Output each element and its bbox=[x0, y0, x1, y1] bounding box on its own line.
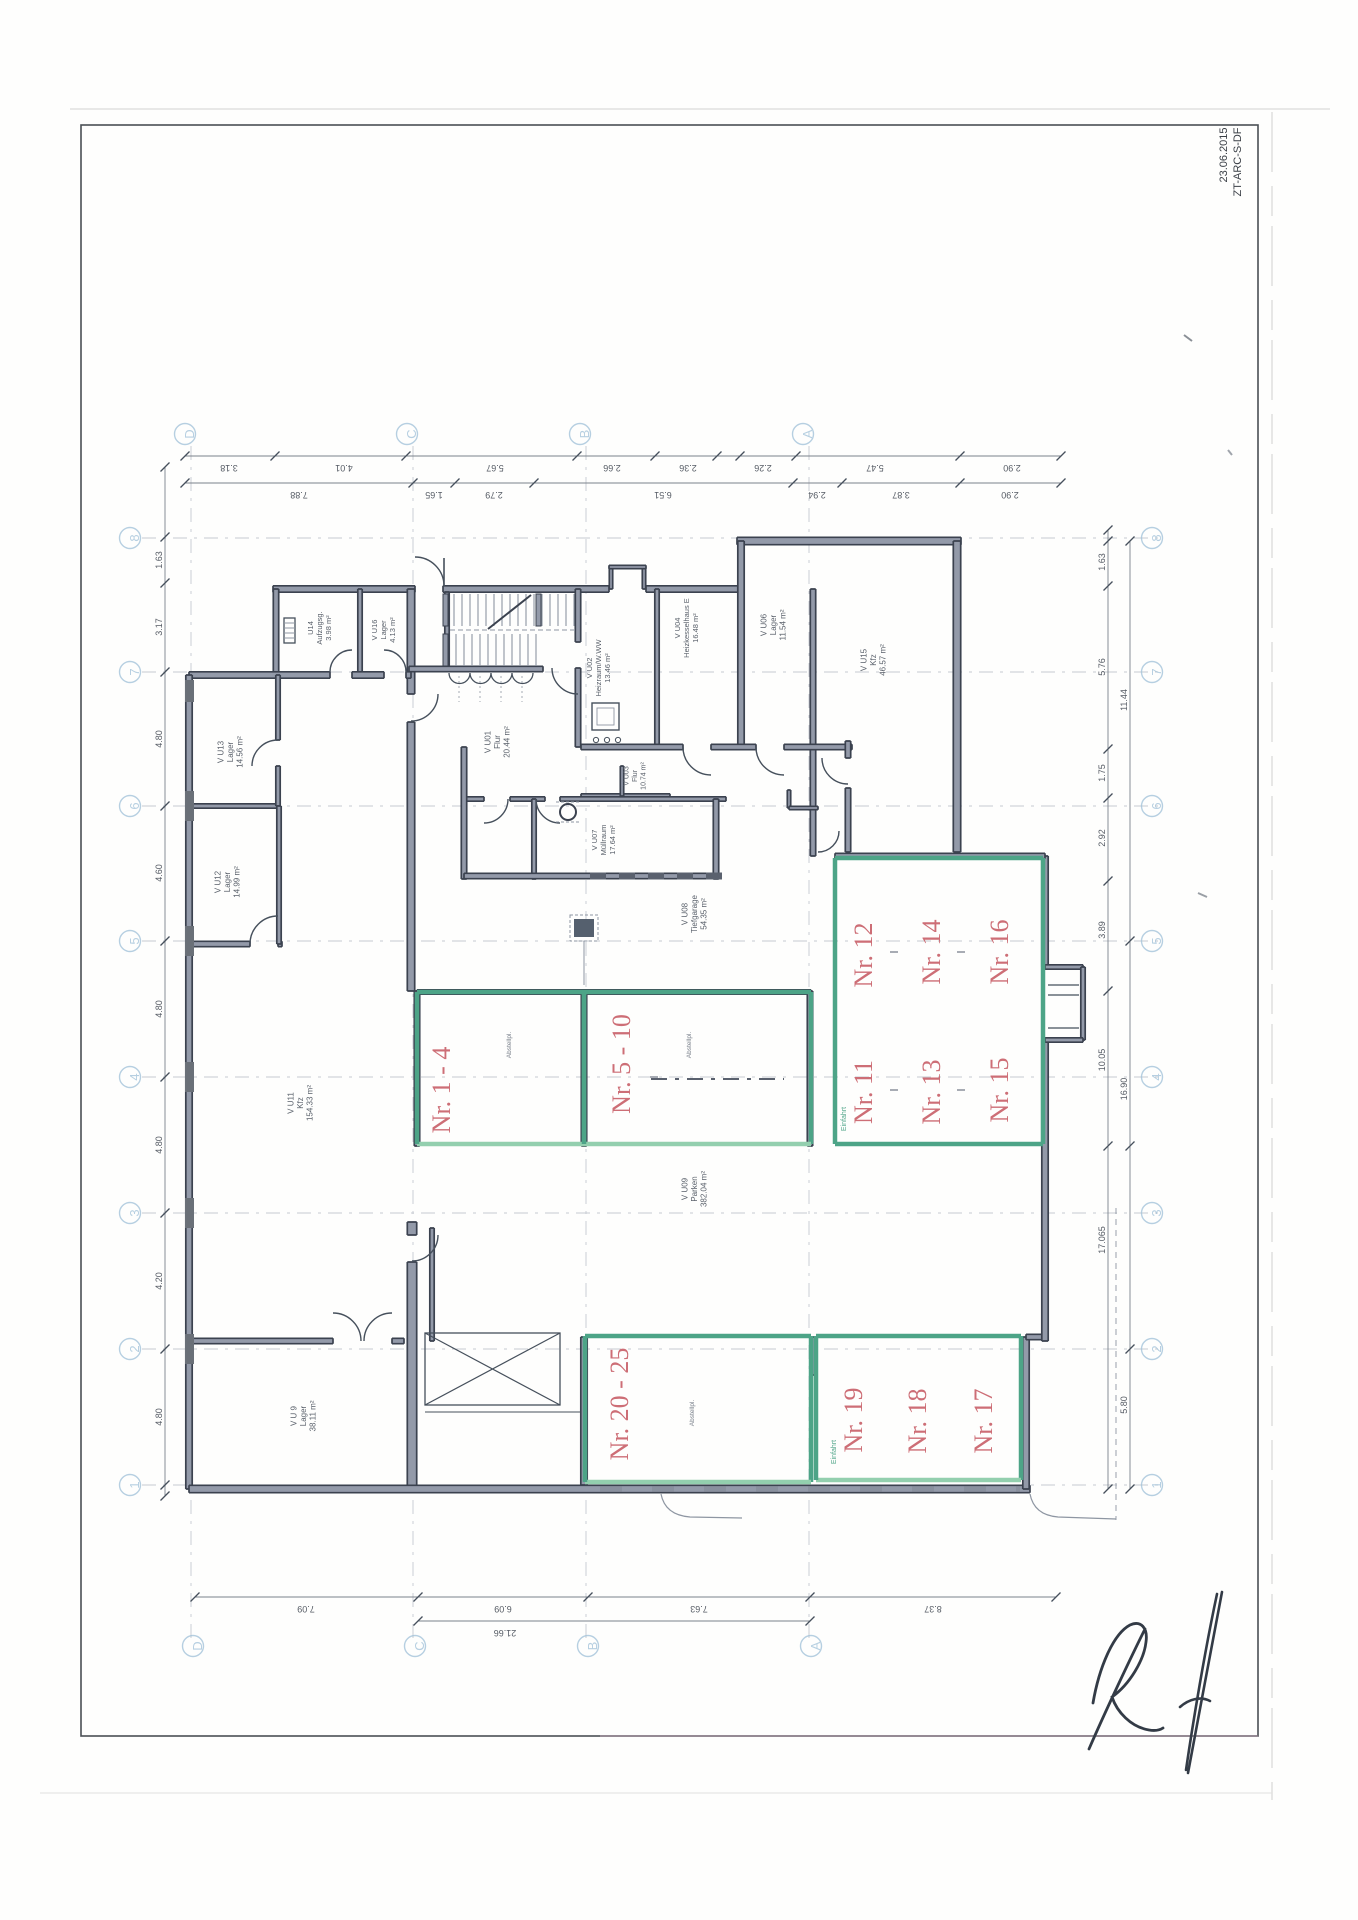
svg-text:7: 7 bbox=[127, 668, 142, 675]
svg-text:4.13 m²: 4.13 m² bbox=[388, 617, 397, 643]
svg-text:4: 4 bbox=[1149, 1073, 1164, 1080]
svg-text:6: 6 bbox=[127, 802, 142, 809]
svg-text:4.80: 4.80 bbox=[154, 1136, 164, 1154]
svg-text:ZT-ARC-S-DF: ZT-ARC-S-DF bbox=[1232, 127, 1244, 196]
svg-text:B: B bbox=[577, 430, 592, 439]
svg-text:11.44: 11.44 bbox=[1119, 689, 1129, 711]
svg-text:Nr. 16: Nr. 16 bbox=[985, 920, 1014, 985]
svg-text:16.48 m²: 16.48 m² bbox=[691, 613, 700, 643]
svg-text:14.56 m²: 14.56 m² bbox=[236, 736, 245, 768]
svg-text:2.79: 2.79 bbox=[485, 490, 503, 500]
svg-text:4.20: 4.20 bbox=[154, 1272, 164, 1290]
svg-text:A: A bbox=[808, 1641, 823, 1650]
svg-text:Müllraum: Müllraum bbox=[599, 825, 608, 856]
svg-text:2.66: 2.66 bbox=[603, 463, 621, 473]
svg-text:2.90: 2.90 bbox=[1001, 490, 1019, 500]
svg-text:C: C bbox=[412, 1641, 427, 1650]
svg-text:V U07: V U07 bbox=[590, 830, 599, 851]
svg-text:7.88: 7.88 bbox=[290, 490, 308, 500]
svg-text:4.01: 4.01 bbox=[335, 463, 353, 473]
svg-text:Nr. 11: Nr. 11 bbox=[849, 1060, 878, 1124]
svg-text:5.80: 5.80 bbox=[1119, 1396, 1129, 1414]
svg-text:V U15: V U15 bbox=[860, 648, 869, 671]
svg-text:Parken: Parken bbox=[690, 1176, 699, 1201]
svg-text:16.90: 16.90 bbox=[1119, 1078, 1129, 1101]
svg-text:7.09: 7.09 bbox=[297, 1604, 315, 1614]
svg-text:Nr. 17: Nr. 17 bbox=[969, 1389, 998, 1454]
svg-text:D: D bbox=[182, 429, 197, 438]
svg-text:21.66: 21.66 bbox=[494, 1628, 517, 1638]
svg-text:5: 5 bbox=[127, 937, 142, 944]
svg-text:Heizraum/W.WW: Heizraum/W.WW bbox=[594, 639, 603, 697]
svg-text:Heizkesselhaus E: Heizkesselhaus E bbox=[682, 598, 691, 658]
svg-text:V U01: V U01 bbox=[484, 730, 493, 753]
svg-text:Lager: Lager bbox=[223, 871, 232, 892]
svg-text:6.51: 6.51 bbox=[654, 490, 672, 500]
svg-text:V U09: V U09 bbox=[681, 1177, 690, 1200]
svg-text:23.06.2015: 23.06.2015 bbox=[1218, 127, 1230, 182]
svg-text:Lager: Lager bbox=[299, 1405, 308, 1426]
svg-text:3.89: 3.89 bbox=[1097, 921, 1107, 939]
svg-text:V U04: V U04 bbox=[673, 618, 682, 639]
svg-text:Flur: Flur bbox=[493, 735, 502, 749]
svg-text:Nr. 20 - 25: Nr. 20 - 25 bbox=[605, 1348, 634, 1461]
svg-text:4.80: 4.80 bbox=[154, 1000, 164, 1018]
svg-text:17.64 m²: 17.64 m² bbox=[608, 825, 617, 855]
svg-text:3.98 m²: 3.98 m² bbox=[324, 615, 333, 641]
svg-text:V U06: V U06 bbox=[760, 613, 769, 636]
svg-text:Nr. 14: Nr. 14 bbox=[917, 920, 946, 985]
svg-text:V U02: V U02 bbox=[585, 658, 594, 679]
svg-text:Abstellpl.: Abstellpl. bbox=[506, 1032, 513, 1059]
svg-text:Kfz: Kfz bbox=[869, 654, 878, 666]
svg-text:3.87: 3.87 bbox=[892, 490, 910, 500]
svg-text:U14: U14 bbox=[306, 621, 315, 635]
svg-text:2.92: 2.92 bbox=[1097, 829, 1107, 847]
svg-text:V U12: V U12 bbox=[214, 870, 223, 893]
svg-text:B: B bbox=[585, 1642, 600, 1651]
svg-text:V U11: V U11 bbox=[287, 1092, 296, 1114]
svg-text:6: 6 bbox=[1149, 802, 1164, 809]
svg-text:8: 8 bbox=[127, 534, 142, 541]
svg-text:2: 2 bbox=[127, 1345, 142, 1352]
svg-text:Nr. 5 - 10: Nr. 5 - 10 bbox=[607, 1014, 636, 1114]
svg-text:3.17: 3.17 bbox=[154, 618, 164, 636]
svg-text:5.47: 5.47 bbox=[866, 463, 884, 473]
svg-text:Nr. 18: Nr. 18 bbox=[903, 1389, 932, 1454]
svg-text:10.05: 10.05 bbox=[1097, 1049, 1107, 1072]
svg-text:46.57 m²: 46.57 m² bbox=[879, 644, 888, 676]
svg-text:V U13: V U13 bbox=[217, 740, 226, 763]
svg-text:5: 5 bbox=[1149, 937, 1164, 944]
svg-text:Lager: Lager bbox=[226, 741, 235, 762]
svg-text:Flur: Flur bbox=[632, 769, 639, 782]
svg-text:Nr. 1 - 4: Nr. 1 - 4 bbox=[427, 1047, 456, 1134]
svg-text:382.04 m²: 382.04 m² bbox=[700, 1171, 709, 1207]
svg-text:4.80: 4.80 bbox=[154, 1408, 164, 1426]
svg-text:Aufzugsg.: Aufzugsg. bbox=[315, 611, 324, 644]
svg-text:5.76: 5.76 bbox=[1097, 658, 1107, 676]
svg-text:4.60: 4.60 bbox=[154, 864, 164, 882]
svg-text:Tiefgarage: Tiefgarage bbox=[690, 894, 699, 933]
svg-text:17.065: 17.065 bbox=[1097, 1226, 1107, 1254]
svg-text:6.09: 6.09 bbox=[494, 1604, 512, 1614]
svg-text:14.99 m²: 14.99 m² bbox=[233, 866, 242, 898]
svg-text:D: D bbox=[190, 1641, 205, 1650]
svg-text:C: C bbox=[404, 429, 419, 438]
svg-text:2.36: 2.36 bbox=[679, 463, 697, 473]
svg-text:Abstellpl.: Abstellpl. bbox=[686, 1032, 693, 1059]
svg-text:7: 7 bbox=[1149, 668, 1164, 675]
svg-text:10.74 m²: 10.74 m² bbox=[641, 762, 648, 790]
svg-text:A: A bbox=[800, 429, 815, 438]
svg-text:Kfz: Kfz bbox=[296, 1097, 305, 1109]
svg-text:154.33 m²: 154.33 m² bbox=[306, 1085, 315, 1121]
svg-text:1.75: 1.75 bbox=[1097, 764, 1107, 782]
svg-text:13.46 m²: 13.46 m² bbox=[603, 653, 612, 683]
svg-text:3: 3 bbox=[1149, 1209, 1164, 1216]
svg-text:Nr. 19: Nr. 19 bbox=[839, 1388, 868, 1453]
svg-text:Lager: Lager bbox=[769, 614, 778, 635]
svg-text:Nr. 15: Nr. 15 bbox=[985, 1058, 1014, 1123]
svg-text:3: 3 bbox=[127, 1209, 142, 1216]
svg-text:54.35 m²: 54.35 m² bbox=[700, 898, 709, 930]
svg-text:5.67: 5.67 bbox=[486, 463, 504, 473]
svg-text:1: 1 bbox=[1149, 1481, 1164, 1488]
svg-text:V U 9: V U 9 bbox=[290, 1405, 299, 1426]
svg-text:2: 2 bbox=[1149, 1345, 1164, 1352]
svg-text:1.63: 1.63 bbox=[1097, 553, 1107, 571]
svg-text:Nr. 12: Nr. 12 bbox=[849, 923, 878, 988]
svg-text:Nr. 13: Nr. 13 bbox=[917, 1060, 946, 1125]
svg-text:3.18: 3.18 bbox=[220, 463, 238, 473]
svg-text:2.90: 2.90 bbox=[1003, 463, 1021, 473]
svg-text:V U03: V U03 bbox=[624, 766, 631, 786]
svg-text:20.44 m²: 20.44 m² bbox=[503, 726, 512, 758]
svg-text:Abstellpl.: Abstellpl. bbox=[689, 1400, 696, 1427]
svg-text:Einfahrt: Einfahrt bbox=[841, 1107, 848, 1131]
svg-text:V U16: V U16 bbox=[370, 620, 379, 641]
svg-text:38.11 m²: 38.11 m² bbox=[309, 1400, 318, 1431]
svg-text:2.94: 2.94 bbox=[808, 490, 826, 500]
svg-text:Lager: Lager bbox=[379, 620, 388, 640]
svg-text:Einfahrt: Einfahrt bbox=[831, 1440, 838, 1464]
svg-text:4.80: 4.80 bbox=[154, 730, 164, 748]
svg-text:V U08: V U08 bbox=[681, 902, 690, 925]
svg-text:1: 1 bbox=[127, 1481, 142, 1488]
svg-text:1.63: 1.63 bbox=[154, 551, 164, 569]
svg-text:4: 4 bbox=[127, 1073, 142, 1080]
svg-text:2.26: 2.26 bbox=[754, 463, 772, 473]
svg-text:7.63: 7.63 bbox=[690, 1604, 708, 1614]
svg-text:1.65: 1.65 bbox=[425, 490, 443, 500]
svg-text:11.54 m²: 11.54 m² bbox=[779, 609, 788, 640]
svg-text:8: 8 bbox=[1149, 534, 1164, 541]
svg-text:8.37: 8.37 bbox=[924, 1604, 942, 1614]
